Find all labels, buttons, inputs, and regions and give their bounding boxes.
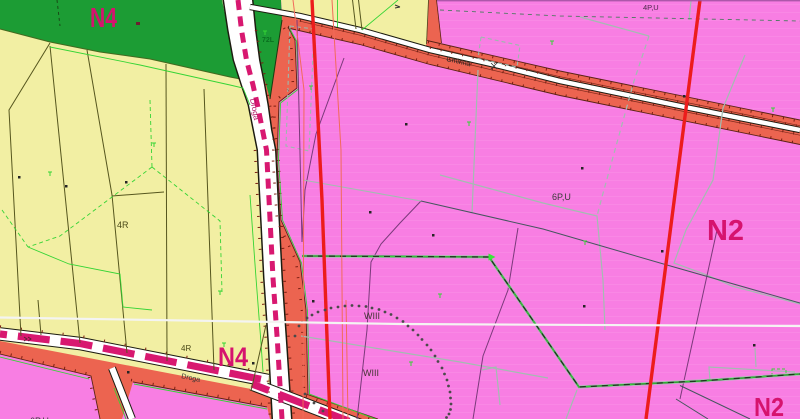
- svg-text:WIII: WIII: [363, 368, 379, 378]
- svg-text:72L: 72L: [262, 37, 275, 44]
- svg-text:6P,U: 6P,U: [552, 192, 571, 202]
- svg-text:4P,U: 4P,U: [643, 3, 659, 12]
- svg-text:N4: N4: [218, 342, 248, 372]
- svg-text:4R: 4R: [117, 220, 129, 230]
- svg-text:WIII: WIII: [364, 311, 380, 321]
- svg-text:N2: N2: [707, 215, 744, 247]
- svg-text:N4: N4: [90, 2, 117, 33]
- svg-text:4R: 4R: [181, 344, 191, 353]
- svg-text:N2: N2: [754, 392, 784, 419]
